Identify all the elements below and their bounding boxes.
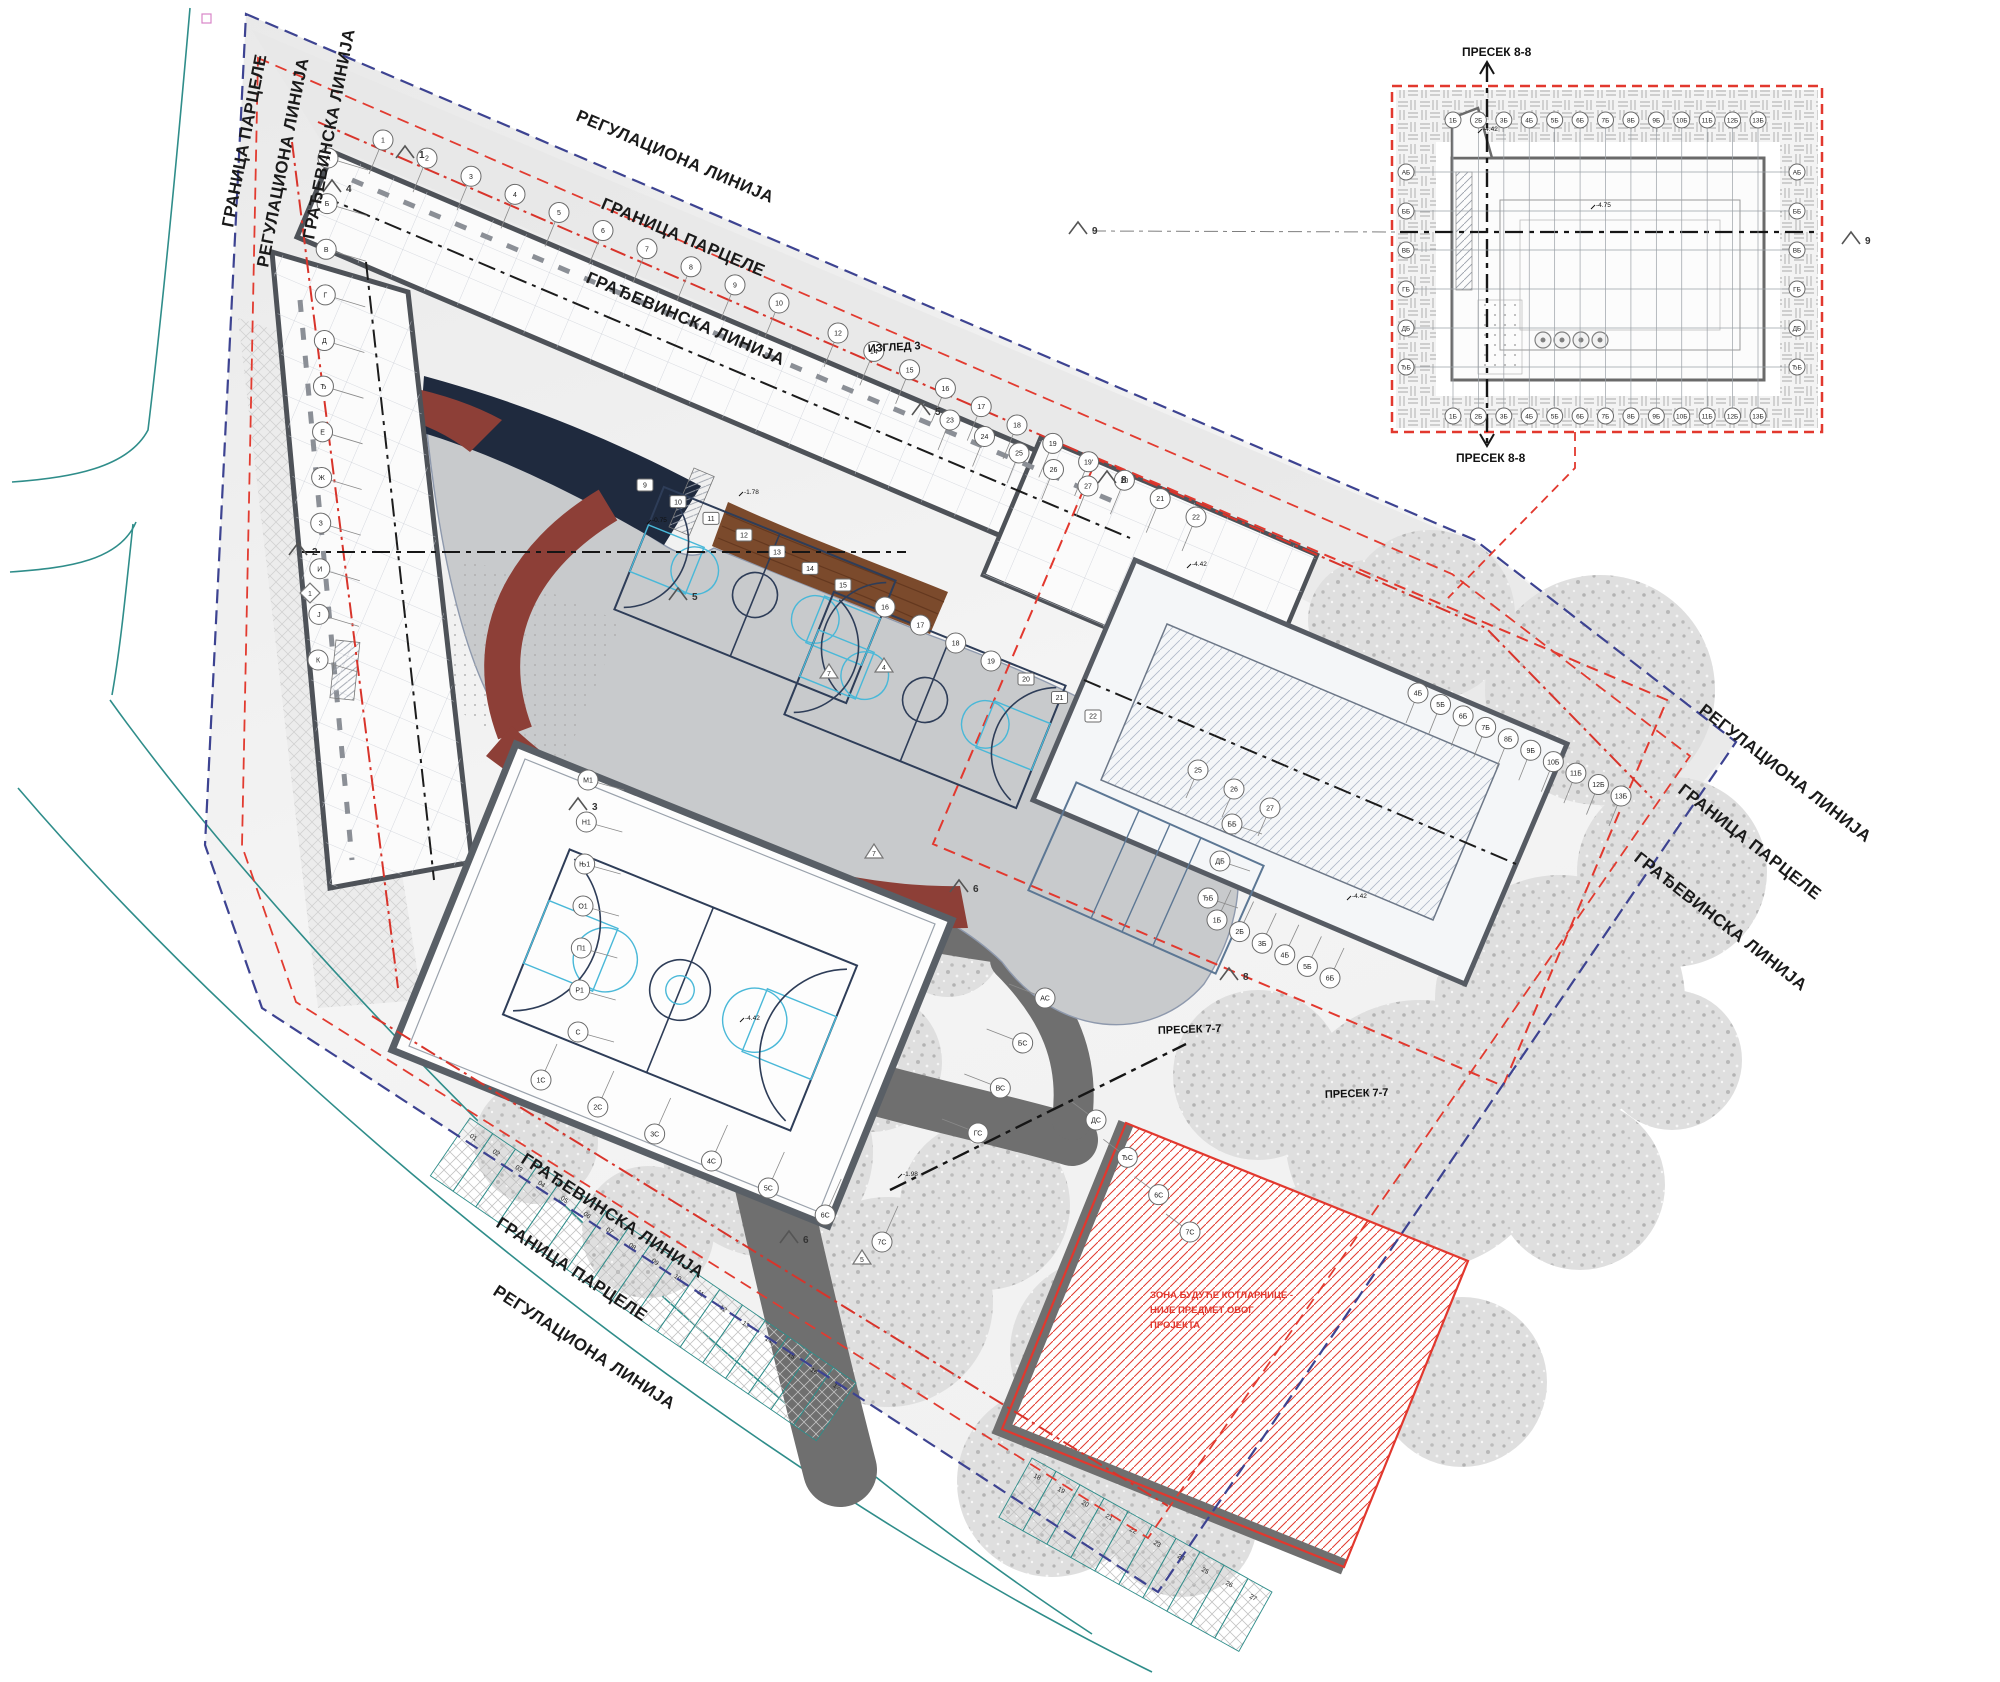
grid-bubble-label: 14: [806, 566, 814, 573]
grid-bubble-label: ДС: [1091, 1118, 1101, 1125]
spot-elevation: -4.75: [1596, 202, 1611, 209]
grid-bubble-label: Р1: [575, 988, 584, 995]
grid-bubble-label: ВБ: [1402, 248, 1411, 255]
grid-bubble-label: 6Б: [1459, 713, 1468, 720]
grid-bubble-label: Б: [325, 201, 330, 208]
grid-bubble-label: 18: [952, 641, 960, 648]
grid-bubble-label: И: [317, 566, 322, 573]
grid-bubble-label: 26: [1050, 467, 1058, 474]
grid-bubble-label: ББ: [1793, 209, 1802, 216]
grid-bubble-label: Г: [323, 293, 327, 300]
grid-bubble-label: 13Б: [1752, 118, 1764, 125]
survey-marker: [202, 14, 211, 23]
grid-bubble-label: ГС: [974, 1131, 983, 1138]
grid-bubble-label: П1: [577, 946, 586, 953]
grid-bubble-label: 19': [1084, 459, 1093, 466]
grid-bubble-label: АС: [1040, 996, 1050, 1003]
grid-bubble-label: 23: [946, 418, 954, 425]
grid-bubble-label: 3С: [650, 1132, 659, 1139]
street-curb-west: [12, 8, 190, 482]
grid-bubble-label: ББ: [1402, 209, 1411, 216]
grid-bubble-label: АБ: [1793, 170, 1802, 177]
grid-bubble-label: 7С: [878, 1240, 887, 1247]
section-label: ПРЕСЕК 7-7: [1325, 1087, 1389, 1101]
grid-bubble-label: 18: [1013, 423, 1021, 430]
svg-text:7: 7: [872, 851, 876, 858]
tree-canopy: [1602, 990, 1742, 1130]
grid-bubble-label: 1Б: [1449, 414, 1457, 421]
section-label: ПРЕСЕК 7-7: [1158, 1023, 1222, 1037]
grid-bubble-label: 8Б: [1627, 118, 1635, 125]
svg-text:9: 9: [1865, 236, 1871, 247]
grid-bubble-label: ВС: [996, 1086, 1006, 1093]
grid-bubble-label: 11Б: [1702, 118, 1713, 125]
grid-bubble-label: 5Б: [1303, 964, 1312, 971]
grid-bubble-label: Ђ: [320, 384, 326, 391]
grid-bubble-label: ДБ: [1402, 326, 1411, 333]
grid-bubble-label: 12Б: [1727, 118, 1739, 125]
grid-bubble-label: 22: [1089, 714, 1097, 721]
grid-bubble-label: 16: [942, 386, 950, 393]
grid-bubble-label: ГБ: [1793, 287, 1801, 294]
grid-bubble-label: 13Б: [1615, 794, 1628, 801]
grid-bubble-label: ГБ: [1402, 287, 1410, 294]
grid-bubble-label: 4Б: [1525, 414, 1533, 421]
grid-bubble-label: 4Б: [1281, 952, 1290, 959]
section-line-9-ext: [1092, 231, 1398, 232]
grid-bubble-label: 13: [773, 549, 781, 556]
zone-note-line: ПРОЈЕКТА: [1150, 1320, 1200, 1331]
grid-bubble-label: 2С: [593, 1105, 602, 1112]
grid-bubble-label: 13Б: [1752, 414, 1764, 421]
svg-text:5: 5: [860, 1257, 864, 1264]
grid-bubble-label: 10Б: [1676, 414, 1688, 421]
grid-bubble-label: 9Б: [1652, 118, 1660, 125]
grid-bubble-label: 5Б: [1551, 118, 1559, 125]
svg-text:5: 5: [935, 407, 941, 418]
grid-bubble-label: О1: [578, 904, 587, 911]
grid-bubble-label: 21: [1056, 695, 1064, 702]
grid-bubble-label: 27: [1084, 484, 1092, 491]
grid-bubble-label: 9: [643, 483, 647, 490]
grid-bubble-label: 10: [674, 499, 682, 506]
grid-bubble-label: 2Б: [1474, 414, 1482, 421]
svg-text:8: 8: [1121, 475, 1127, 486]
grid-bubble-label: 5: [557, 210, 561, 217]
grid-bubble-label: 21: [1156, 496, 1164, 503]
grid-bubble-label: Ј: [317, 612, 321, 619]
grid-bubble-label: 17: [977, 404, 985, 411]
grid-bubble-label: Н1: [582, 820, 591, 827]
inset-title-top: ПРЕСЕК 8-8: [1462, 45, 1532, 59]
svg-text:9: 9: [1092, 226, 1098, 237]
grid-bubble-label: 20: [1022, 677, 1030, 684]
grid-bubble-label: 5Б: [1551, 414, 1559, 421]
grid-bubble-label: 12Б: [1727, 414, 1739, 421]
svg-text:1: 1: [308, 591, 312, 598]
grid-bubble-label: 4Б: [1525, 118, 1533, 125]
grid-bubble-label: С: [575, 1030, 580, 1037]
grid-bubble-label: 12: [740, 533, 748, 540]
svg-text:8: 8: [1243, 972, 1249, 983]
grid-bubble-label: 12: [834, 331, 842, 338]
grid-bubble-label: 3Б: [1500, 414, 1508, 421]
spot-elevation: -4.42: [1192, 561, 1207, 568]
street-curb-west2: [112, 524, 133, 695]
section-marker: 9: [1842, 232, 1871, 247]
grid-bubble-label: 26: [1230, 787, 1238, 794]
grid-bubble-label: 9: [733, 282, 737, 289]
grid-bubble-label: 12Б: [1592, 782, 1605, 789]
grid-bubble-label: 6Б: [1576, 414, 1584, 421]
grid-bubble-label: 6Б: [1576, 118, 1584, 125]
grid-bubble-label: 7Б: [1481, 725, 1490, 732]
grid-bubble-label: 6Б: [1326, 976, 1335, 983]
grid-bubble-label: 8: [689, 264, 693, 271]
street-curb-side: [10, 522, 136, 572]
grid-bubble-label: 2Б: [1235, 929, 1244, 936]
spot-elevation: -4.42: [745, 1015, 760, 1022]
grid-bubble-label: 3: [469, 174, 473, 181]
svg-text:4: 4: [346, 184, 352, 195]
zone-note-line: ЗОНА БУДУЋЕ КОТЛАРНИЦЕ -: [1150, 1290, 1293, 1301]
site-plan-canvas: 0102030405060708091011121314151617181920…: [0, 0, 2000, 1682]
grid-bubble-label: 11: [707, 516, 714, 523]
grid-bubble-label: 9Б: [1652, 414, 1660, 421]
grid-bubble-label: 7С: [1186, 1230, 1195, 1237]
spot-elevation: -0.75: [652, 517, 667, 524]
grid-bubble-label: 10Б: [1676, 118, 1688, 125]
grid-bubble-label: 2: [425, 156, 429, 163]
grid-bubble-label: БС: [1018, 1041, 1028, 1048]
grid-bubble-label: 10: [775, 301, 783, 308]
grid-bubble-label: 11Б: [1570, 771, 1582, 778]
grid-bubble-label: 11Б: [1702, 414, 1713, 421]
grid-bubble-label: 5Б: [1436, 702, 1445, 709]
grid-bubble-label: ВБ: [1793, 248, 1802, 255]
grid-bubble-label: М1: [583, 778, 593, 785]
spot-elevation: -1.78: [744, 489, 759, 496]
grid-bubble-label: 22: [1192, 515, 1200, 522]
grid-bubble-label: 9Б: [1527, 748, 1536, 755]
grid-bubble-label: 1С: [537, 1078, 546, 1085]
grid-bubble-label: Ж: [318, 475, 325, 482]
svg-text:4: 4: [882, 665, 886, 672]
grid-bubble-label: ДБ: [1215, 859, 1225, 866]
grid-bubble-label: АБ: [1402, 170, 1411, 177]
spot-elevation: -1.98: [903, 1171, 918, 1178]
grid-bubble-label: 8Б: [1504, 736, 1513, 743]
grid-bubble-label: 10Б: [1547, 759, 1560, 766]
grid-bubble-label: ЂБ: [1792, 365, 1802, 372]
svg-text:6: 6: [973, 884, 979, 895]
svg-text:6: 6: [803, 1235, 809, 1246]
grid-bubble-label: 15: [839, 583, 847, 590]
grid-bubble-label: 16: [881, 605, 889, 612]
section-marker: 9: [1069, 222, 1098, 237]
grid-bubble-label: 4Б: [1414, 691, 1423, 698]
grid-bubble-label: 19: [1049, 441, 1057, 448]
spot-elevation: -4.42: [1483, 126, 1498, 133]
svg-text:2: 2: [312, 547, 318, 558]
site-plan-drawing: 0102030405060708091011121314151617181920…: [0, 0, 2000, 1682]
grid-bubble-label: 7Б: [1602, 118, 1610, 125]
grid-bubble-label: 27: [1266, 806, 1274, 813]
grid-bubble-label: 1: [381, 138, 385, 145]
grid-bubble-label: 25: [1015, 451, 1023, 458]
grid-bubble-label: 6: [601, 228, 605, 235]
grid-bubble-label: 3Б: [1500, 118, 1508, 125]
grid-bubble-label: 1Б: [1449, 118, 1457, 125]
grid-bubble-label: 4С: [707, 1159, 716, 1166]
svg-text:1: 1: [419, 150, 425, 161]
grid-bubble-label: ЂС: [1122, 1155, 1133, 1162]
grid-bubble-label: 15: [906, 367, 914, 374]
svg-text:5: 5: [692, 592, 698, 603]
inset-title-bottom: ПРЕСЕК 8-8: [1456, 451, 1526, 465]
grid-bubble-label: 1Б: [1213, 918, 1222, 925]
grid-bubble-label: З: [319, 521, 323, 528]
grid-bubble-label: 6С: [821, 1213, 830, 1220]
grid-bubble-label: 24: [981, 434, 989, 441]
grid-bubble-label: 5С: [764, 1186, 773, 1193]
grid-bubble-label: 7Б: [1602, 414, 1610, 421]
inset-dotted-room: [1478, 300, 1522, 374]
svg-text:7: 7: [827, 671, 831, 678]
grid-bubble-label: В: [324, 247, 329, 254]
grid-bubble-label: 2Б: [1474, 118, 1482, 125]
grid-bubble-label: Њ1: [579, 862, 590, 869]
grid-bubble-label: 8Б: [1627, 414, 1635, 421]
tree-canopy: [1495, 1100, 1665, 1270]
grid-bubble-label: ДБ: [1793, 326, 1802, 333]
grid-bubble-label: Д: [322, 338, 327, 345]
grid-bubble-label: ЂБ: [1203, 896, 1214, 903]
spot-elevation: -4.42: [1352, 893, 1367, 900]
grid-bubble-label: Е: [320, 429, 325, 436]
zone-note-line: НИЈЕ ПРЕДМЕТ ОВОГ: [1150, 1305, 1254, 1316]
grid-bubble-label: 19: [987, 659, 995, 666]
grid-bubble-label: 3Б: [1258, 941, 1267, 948]
svg-text:3: 3: [592, 802, 598, 813]
grid-bubble-label: 17: [916, 623, 924, 630]
grid-bubble-label: ББ: [1227, 822, 1237, 829]
grid-bubble-label: 6С: [1154, 1192, 1163, 1199]
grid-bubble-label: 4: [513, 192, 517, 199]
grid-bubble-label: 7: [645, 246, 649, 253]
tree-canopy: [1173, 990, 1343, 1160]
grid-bubble-label: 25: [1194, 768, 1202, 775]
grid-bubble-label: ЂБ: [1401, 365, 1411, 372]
